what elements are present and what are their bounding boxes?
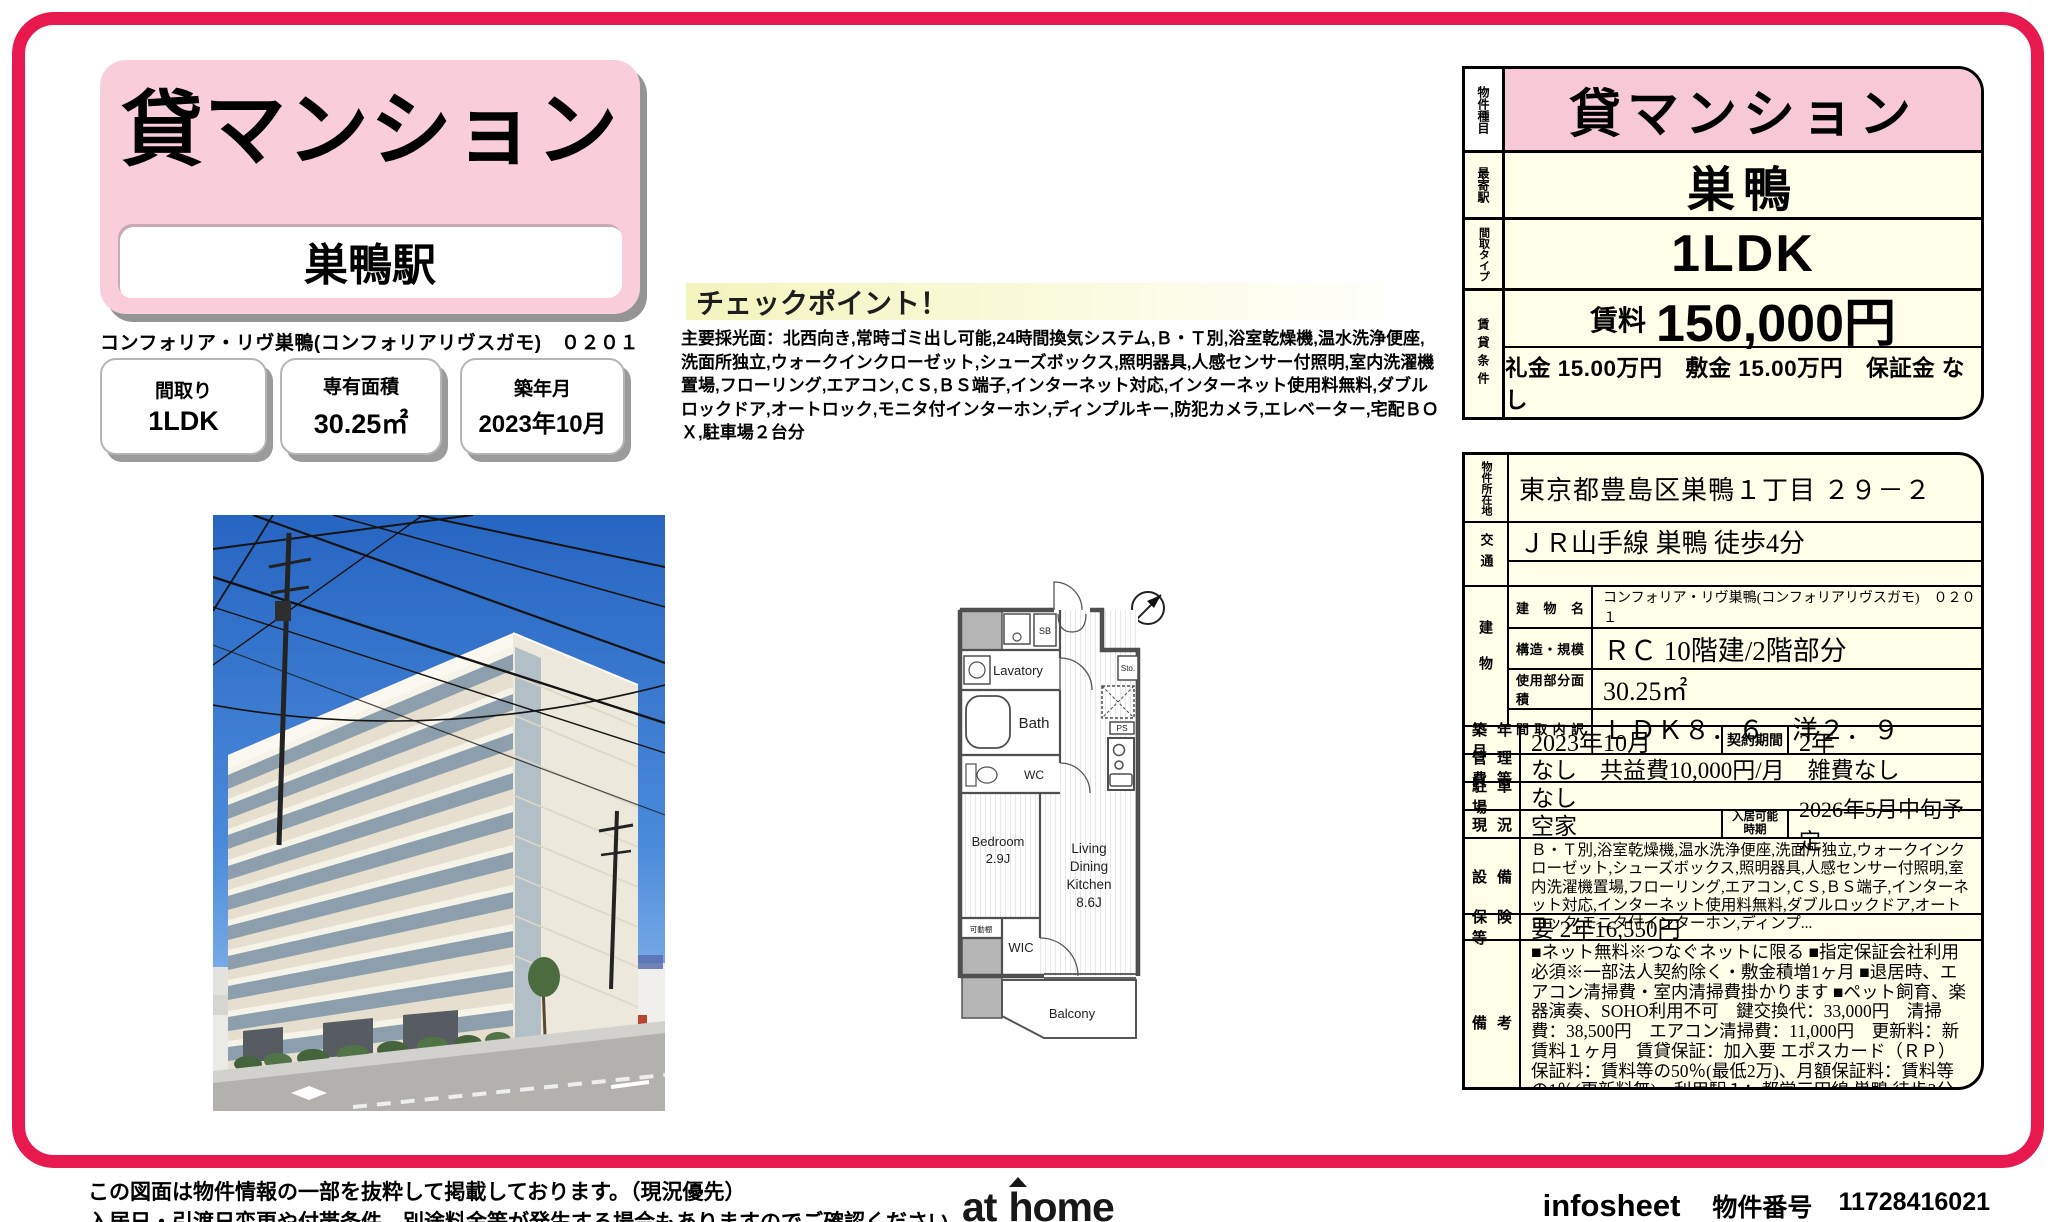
logo-roof-icon: h (1008, 1184, 1032, 1222)
detail-row-insurance: 保険等 要 2年16,550円 (1465, 913, 1981, 939)
summary-box-built: 築年月 2023年10月 (460, 358, 625, 455)
area-row: 使用部分面積 30.25㎡ (1509, 668, 1981, 708)
checkpoint-heading: チェックポイント！ (686, 283, 1388, 320)
ldk-label-1: Living (1071, 841, 1106, 856)
property-type-banner: 貸マンション 巣鴨駅 (100, 60, 640, 314)
detail-row-status: 現況 空家 入居可能時期 2026年5月中旬予定 (1465, 809, 1981, 837)
summary-row-station-value: 巣鴨 (1505, 153, 1981, 220)
building-name-line: コンフォリア・リヴ巣鴨(コンフォリアリヴスガモ) ０２０１ (100, 328, 680, 355)
summary-box-label: 間取り (155, 376, 212, 403)
detail-table: 物件所在地 東京都豊島区巣鴨１丁目 ２９－２ 交通 ＪＲ山手線 巣鴨 徒歩4分 … (1462, 452, 1984, 1090)
summary-row-terms-label: 賃貸条件 (1465, 291, 1505, 417)
detail-row-address: 物件所在地 東京都豊島区巣鴨１丁目 ２９－２ (1465, 455, 1981, 521)
bedroom-size-label: 2.9J (986, 851, 1011, 866)
athome-logo: at h ome (962, 1184, 1114, 1222)
structure-value: ＲＣ 10階建/2階部分 (1593, 629, 1981, 668)
insurance-label: 保険等 (1465, 915, 1521, 939)
structure-row: 構造・規模 ＲＣ 10階建/2階部分 (1509, 627, 1981, 668)
summary-table: 物件種目 貸マンション 最寄駅 巣鴨 間取タイプ 1LDK 賃貸条件 賃料 15… (1462, 66, 1984, 420)
detail-row-access: 交通 ＪＲ山手線 巣鴨 徒歩4分 (1465, 521, 1981, 585)
building-name-value: コンフォリア・リヴ巣鴨(コンフォリアリヴスガモ) ０２０１ (1593, 587, 1981, 627)
building-name-label: 建物名 (1509, 587, 1593, 627)
summary-row-type-value: 貸マンション (1505, 69, 1981, 153)
summary-box-value: 2023年10月 (478, 404, 606, 439)
contract-value: 2年 (1789, 727, 1981, 753)
wic-label: WIC (1008, 940, 1033, 955)
status-label: 現況 (1465, 811, 1521, 837)
address-value: 東京都豊島区巣鴨１丁目 ２９－２ (1509, 455, 1981, 521)
wc-label: WC (1024, 768, 1044, 782)
summary-row-type-label: 物件種目 (1465, 69, 1505, 153)
ldk-label-2: Dining (1070, 859, 1108, 874)
disclaimer-line-1: この図面は物件情報の一部を抜粋して掲載しております。（現況優先） (88, 1178, 970, 1208)
notes-label: 備考 (1465, 941, 1521, 1090)
summary-row-rent: 賃料 150,000円 (1505, 291, 1981, 348)
station-banner: 巣鴨駅 (118, 224, 622, 298)
shelf-label: 可動棚 (970, 924, 993, 934)
rent-label: 賃料 (1590, 299, 1646, 339)
access-label: 交通 (1465, 523, 1509, 585)
property-number-label: 物件番号 (1712, 1188, 1812, 1222)
property-type-title: 貸マンション (100, 78, 640, 185)
contract-label: 契約期間 (1721, 727, 1789, 753)
summary-box-layout: 間取り 1LDK (100, 358, 267, 455)
summary-box-label: 専有面積 (323, 372, 399, 399)
sb-label: SB (1039, 626, 1051, 636)
logo-text-at: at (962, 1184, 996, 1222)
logo-text-ome: ome (1033, 1184, 1114, 1222)
built-value: 2023年10月 (1521, 727, 1721, 753)
summary-box-area: 専有面積 30.25㎡ (280, 358, 442, 455)
bedroom-label: Bedroom (972, 834, 1025, 849)
lavatory-label: Lavatory (993, 663, 1043, 678)
checkpoint-body: 主要採光面：北西向き,常時ゴミ出し可能,24時間換気システム,Ｂ・Ｔ別,浴室乾燥… (681, 327, 1441, 445)
ps-label: PS (1116, 723, 1128, 733)
summary-box-value: 30.25㎡ (314, 402, 409, 441)
footer-disclaimer: この図面は物件情報の一部を抜粋して掲載しております。（現況優先） 入居日・引渡日… (88, 1178, 970, 1222)
summary-box-label: 築年月 (514, 374, 571, 401)
infosheet-page: 貸マンション 巣鴨駅 コンフォリア・リヴ巣鴨(コンフォリアリヴスガモ) ０２０１… (0, 0, 2056, 1222)
status-value: 空家 (1521, 811, 1721, 837)
equipment-label: 設備 (1465, 839, 1521, 913)
area-value: 30.25㎡ (1593, 670, 1981, 708)
rent-value: 150,000円 (1656, 281, 1896, 356)
building-label: 建物 (1465, 587, 1509, 725)
insurance-value: 要 2年16,550円 (1521, 915, 1981, 939)
ldk-label-3: Kitchen (1066, 877, 1111, 892)
balcony-label: Balcony (1049, 1006, 1096, 1021)
fees-value: なし 共益費10,000円/月 雑費なし (1521, 755, 1981, 781)
building-photo (213, 515, 665, 1111)
area-label: 使用部分面積 (1509, 670, 1593, 708)
ldk-size-label: 8.6J (1076, 895, 1102, 910)
movein-label: 入居可能時期 (1721, 811, 1789, 837)
equipment-value: Ｂ・Ｔ別,浴室乾燥機,温水洗浄便座,洗面所独立,ウォークインクローゼット,シュー… (1521, 839, 1981, 913)
address-label: 物件所在地 (1465, 455, 1509, 521)
building-name-row: 建物名 コンフォリア・リヴ巣鴨(コンフォリアリヴスガモ) ０２０１ (1509, 587, 1981, 627)
detail-row-fees: 管理費等 なし 共益費10,000円/月 雑費なし (1465, 753, 1981, 781)
structure-label: 構造・規模 (1509, 629, 1593, 668)
access-value-2 (1509, 560, 1981, 585)
infosheet-label: infosheet (1543, 1188, 1681, 1222)
footer-right: infosheet 物件番号 11728416021 (1543, 1188, 1998, 1222)
disclaimer-line-2: 入居日・引渡日変更や付帯条件、別途料金等が発生する場合もありますのでご確認くださ… (88, 1208, 970, 1222)
notes-value: ■ネット無料※つなぐネットに限る ■指定保証会社利用必須※一部法人契約除く・敷金… (1521, 941, 1981, 1090)
bath-label: Bath (1019, 715, 1050, 732)
detail-row-built: 築年月 2023年10月 契約期間 2年 (1465, 725, 1981, 753)
summary-row-layout-label: 間取タイプ (1465, 220, 1505, 291)
property-number: 物件番号 11728416021 (1710, 1188, 1998, 1222)
property-number-value: 11728416021 (1838, 1188, 1990, 1222)
detail-row-equipment: 設備 Ｂ・Ｔ別,浴室乾燥機,温水洗浄便座,洗面所独立,ウォークインクローゼット,… (1465, 837, 1981, 913)
storage-label: Sto. (1121, 664, 1135, 673)
detail-row-notes: 備考 ■ネット無料※つなぐネットに限る ■指定保証会社利用必須※一部法人契約除く… (1465, 939, 1981, 1090)
floorplan: N (950, 578, 1190, 1073)
access-value: ＪＲ山手線 巣鴨 徒歩4分 (1509, 523, 1981, 560)
detail-row-building: 建物 建物名 コンフォリア・リヴ巣鴨(コンフォリアリヴスガモ) ０２０１ 構造・… (1465, 585, 1981, 725)
summary-box-value: 1LDK (148, 406, 219, 437)
movein-value: 2026年5月中旬予定 (1789, 811, 1981, 837)
summary-row-fees: 礼金 15.00万円 敷金 15.00万円 保証金 なし (1505, 348, 1981, 417)
summary-row-station-label: 最寄駅 (1465, 153, 1505, 220)
parking-label: 駐車場 (1465, 783, 1521, 809)
